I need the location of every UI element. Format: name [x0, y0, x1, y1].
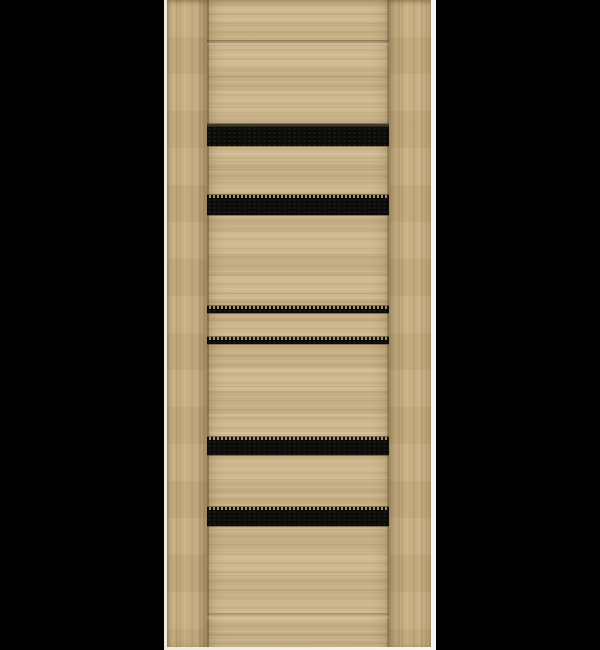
- bottom-rail-groove: [207, 613, 389, 618]
- door-panel-column: [207, 0, 389, 647]
- glass-insert: [207, 337, 389, 344]
- glass-insert: [207, 437, 389, 455]
- glass-insert: [207, 306, 389, 313]
- door-wood-body: [167, 0, 431, 647]
- glass-insert: [207, 195, 389, 215]
- product-image-stage: [0, 0, 600, 650]
- glass-insert-pane: [207, 198, 389, 215]
- glass-insert-pane: [207, 127, 389, 146]
- door-right-stile: [389, 0, 431, 647]
- glass-insert-pane: [207, 510, 389, 526]
- glass-insert-pane: [207, 440, 389, 455]
- door: [164, 0, 436, 650]
- door-left-stile: [167, 0, 207, 647]
- glass-insert-pane: [207, 309, 389, 313]
- glass-insert-pane: [207, 340, 389, 344]
- glass-insert: [207, 507, 389, 526]
- top-rail-groove: [207, 40, 389, 45]
- glass-insert: [207, 124, 389, 146]
